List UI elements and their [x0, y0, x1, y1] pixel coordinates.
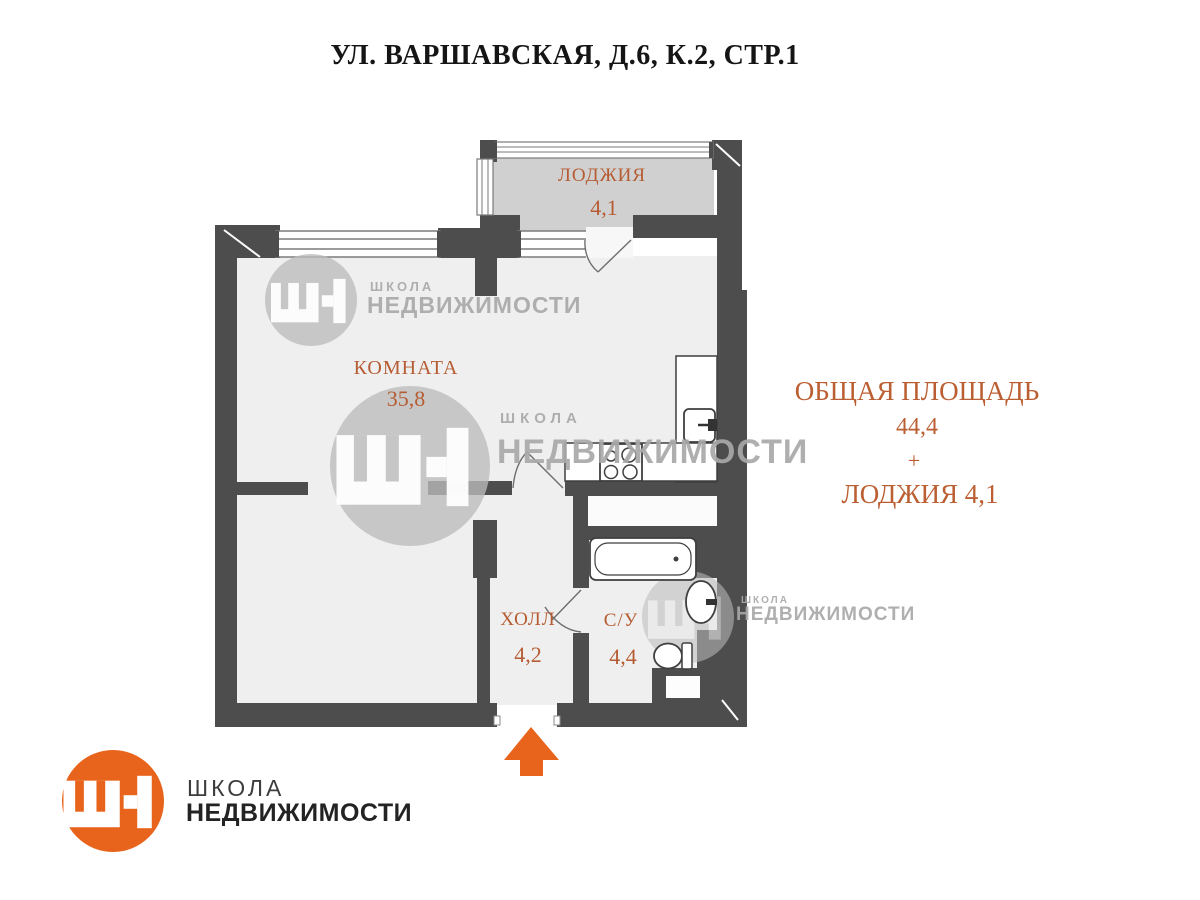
brand-logo-icon	[62, 750, 164, 852]
summary-total: 44,4	[896, 414, 938, 441]
room-area-hall: 4,2	[514, 642, 542, 668]
room-label-room: КОМНАТА	[354, 357, 459, 380]
entrance-opening	[494, 705, 560, 725]
page-title: УЛ. ВАРШАВСКАЯ, Д.6, К.2, СТР.1	[330, 40, 799, 72]
logo-school-text: ШКОЛА	[187, 775, 284, 802]
floor-plan-page: УЛ. ВАРШАВСКАЯ, Д.6, К.2, СТР.1 ЛОДЖИЯ 4…	[0, 0, 1200, 900]
watermark2-school-text: ШКОЛА	[500, 410, 582, 427]
summary-plus: +	[908, 448, 920, 474]
room-window	[274, 231, 442, 257]
summary-title: ОБЩАЯ ПЛОЩАДЬ	[795, 376, 1039, 407]
toilet	[654, 644, 682, 669]
room-area-room: 35,8	[387, 386, 426, 412]
entrance-arrow-icon	[504, 727, 559, 776]
room-label-bathroom: С/У	[604, 610, 638, 632]
room-label-hall: ХОЛЛ	[500, 609, 555, 631]
watermark-top-left	[265, 254, 357, 346]
corner-notch	[666, 676, 700, 698]
kitchen-window	[516, 231, 588, 257]
room-label-loggia: ЛОДЖИЯ	[558, 165, 646, 187]
watermark3-realty-text: НЕДВИЖИМОСТИ	[736, 604, 915, 626]
watermark1-realty-text: НЕДВИЖИМОСТИ	[367, 292, 581, 319]
room-area-bathroom: 4,4	[609, 644, 637, 670]
summary-loggia: ЛОДЖИЯ 4,1	[841, 479, 998, 510]
loggia-glazing	[493, 142, 713, 158]
room-area-loggia: 4,1	[590, 195, 618, 221]
shaft-area	[588, 495, 717, 527]
loggia-side-window	[477, 159, 493, 215]
logo-realty-text: НЕДВИЖИМОСТИ	[186, 799, 412, 828]
watermark2-realty-text: НЕДВИЖИМОСТИ	[497, 433, 808, 472]
bath-faucet	[706, 599, 717, 605]
